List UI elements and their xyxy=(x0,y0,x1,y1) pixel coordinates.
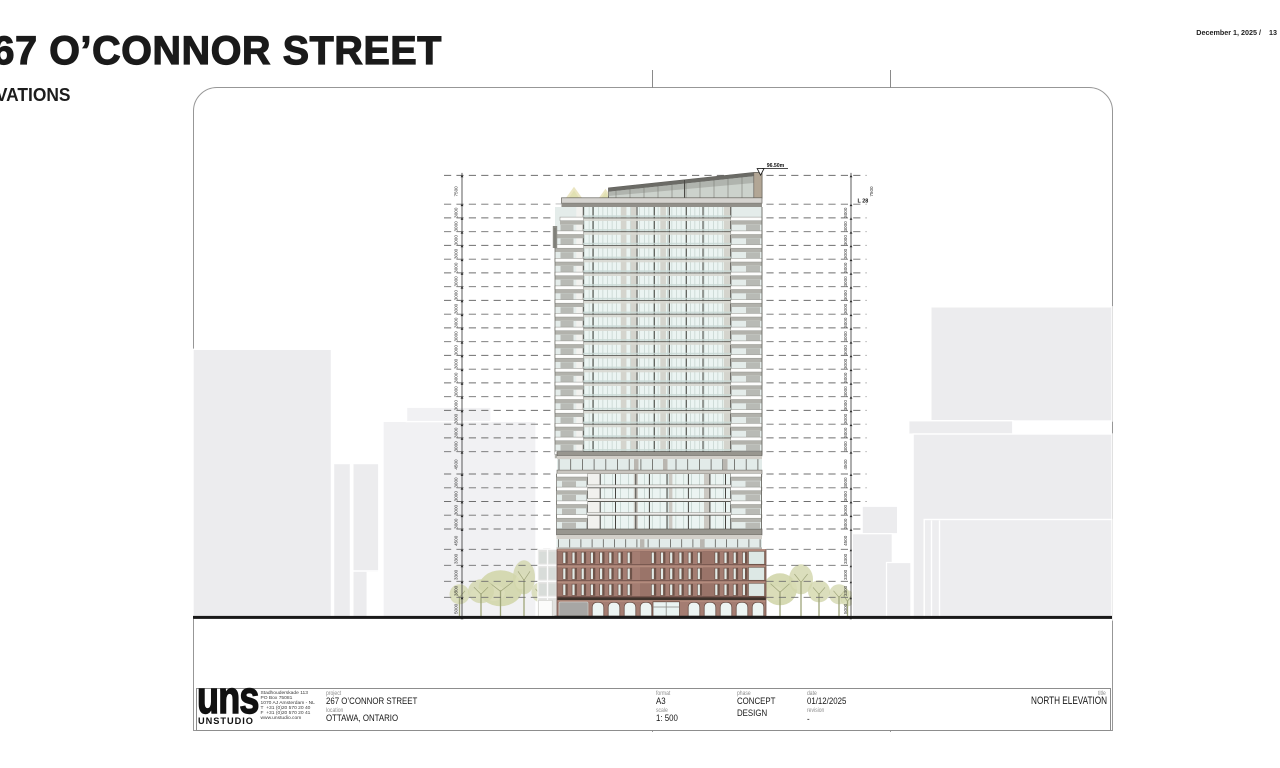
svg-text:3000: 3000 xyxy=(843,504,848,515)
svg-text:3000: 3000 xyxy=(453,518,458,529)
svg-text:3000: 3000 xyxy=(453,331,458,342)
svg-text:3000: 3000 xyxy=(843,331,848,342)
svg-text:3000: 3000 xyxy=(453,317,458,328)
svg-text:3000: 3000 xyxy=(453,400,458,411)
svg-text:3000: 3000 xyxy=(453,248,458,259)
svg-text:3000: 3000 xyxy=(453,413,458,424)
svg-text:3000: 3000 xyxy=(453,441,458,452)
svg-text:3000: 3000 xyxy=(453,358,458,369)
svg-text:3000: 3000 xyxy=(453,386,458,397)
svg-text:3000: 3000 xyxy=(843,386,848,397)
svg-text:3000: 3000 xyxy=(843,262,848,273)
svg-text:3000: 3000 xyxy=(453,221,458,232)
svg-text:3300: 3300 xyxy=(843,585,848,596)
svg-text:3000: 3000 xyxy=(843,441,848,452)
svg-text:3000: 3000 xyxy=(453,276,458,287)
svg-text:3300: 3300 xyxy=(843,569,848,580)
svg-text:3000: 3000 xyxy=(843,518,848,529)
svg-text:3000: 3000 xyxy=(843,345,848,356)
svg-text:3000: 3000 xyxy=(843,372,848,383)
svg-text:3300: 3300 xyxy=(453,585,458,596)
svg-text:5000: 5000 xyxy=(453,603,458,614)
svg-text:3000: 3000 xyxy=(453,427,458,438)
svg-text:3000: 3000 xyxy=(843,221,848,232)
svg-text:4500: 4500 xyxy=(453,459,458,470)
svg-text:3000: 3000 xyxy=(843,303,848,314)
svg-text:5000: 5000 xyxy=(843,603,848,614)
svg-text:3000: 3000 xyxy=(453,477,458,488)
svg-text:3000: 3000 xyxy=(453,491,458,502)
svg-text:3000: 3000 xyxy=(843,477,848,488)
svg-text:3000: 3000 xyxy=(843,491,848,502)
svg-text:L 28: L 28 xyxy=(858,198,869,204)
svg-text:3000: 3000 xyxy=(843,276,848,287)
svg-text:3000: 3000 xyxy=(453,235,458,246)
svg-text:3000: 3000 xyxy=(453,207,458,218)
svg-text:3000: 3000 xyxy=(843,400,848,411)
svg-text:3000: 3000 xyxy=(453,504,458,515)
svg-text:3300: 3300 xyxy=(453,569,458,580)
svg-text:3300: 3300 xyxy=(843,553,848,564)
svg-text:96.50m: 96.50m xyxy=(767,163,785,169)
svg-text:3000: 3000 xyxy=(453,372,458,383)
svg-text:3000: 3000 xyxy=(453,262,458,273)
svg-text:3000: 3000 xyxy=(843,235,848,246)
svg-text:4500: 4500 xyxy=(843,459,848,470)
svg-text:3000: 3000 xyxy=(843,317,848,328)
svg-text:7500: 7500 xyxy=(453,186,458,197)
svg-text:3000: 3000 xyxy=(843,248,848,259)
svg-text:3000: 3000 xyxy=(843,413,848,424)
svg-text:3000: 3000 xyxy=(453,290,458,301)
svg-text:3000: 3000 xyxy=(843,207,848,218)
svg-text:3000: 3000 xyxy=(843,427,848,438)
svg-text:3000: 3000 xyxy=(843,358,848,369)
svg-text:4500: 4500 xyxy=(843,535,848,546)
svg-text:3000: 3000 xyxy=(453,303,458,314)
svg-text:4500: 4500 xyxy=(453,535,458,546)
svg-text:3000: 3000 xyxy=(453,345,458,356)
svg-text:3000: 3000 xyxy=(843,290,848,301)
svg-text:7500: 7500 xyxy=(869,186,874,197)
svg-text:3300: 3300 xyxy=(453,553,458,564)
